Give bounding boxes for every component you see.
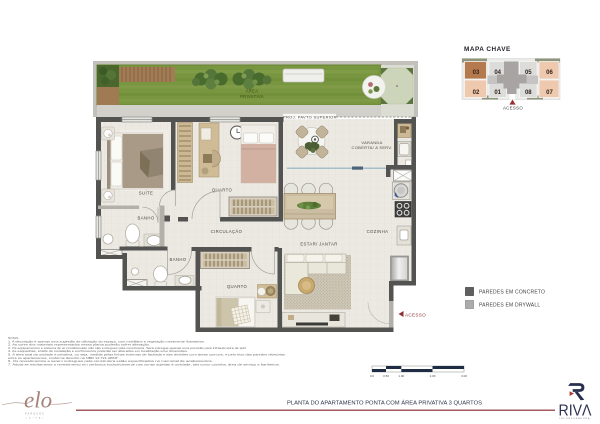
svg-text:04: 04 <box>494 70 501 76</box>
svg-text:ESTAR/ JANTAR: ESTAR/ JANTAR <box>300 242 337 247</box>
svg-text:QUARTO: QUARTO <box>227 284 248 289</box>
svg-text:08: 08 <box>525 90 532 96</box>
svg-text:07: 07 <box>546 90 553 96</box>
svg-text:CIRCULAÇÃO: CIRCULAÇÃO <box>211 229 243 234</box>
svg-text:MAPA CHAVE: MAPA CHAVE <box>464 46 511 53</box>
svg-text:elo: elo <box>24 388 52 413</box>
svg-text:1.00: 1.00 <box>398 374 404 378</box>
svg-text:( R I V A ): ( R I V A ) <box>26 417 44 420</box>
svg-text:PRIVATIVA: PRIVATIVA <box>240 94 264 99</box>
svg-text:BANHO: BANHO <box>169 257 186 262</box>
svg-text:7. Adota-se estritamente o rev: 7. Adota-se estritamente o revestimento … <box>8 362 280 366</box>
svg-text:PROJ. PAVTO SUPERIOR: PROJ. PAVTO SUPERIOR <box>283 114 337 119</box>
svg-text:3.00: 3.00 <box>461 374 467 378</box>
svg-text:PARQUES: PARQUES <box>25 413 45 416</box>
svg-text:SUÍTE: SUÍTE <box>139 191 153 196</box>
svg-text:BANHO: BANHO <box>137 216 154 221</box>
svg-text:02: 02 <box>473 90 480 96</box>
svg-text:0.0: 0.0 <box>370 374 375 378</box>
svg-text:PAREDES EM CONCRETO: PAREDES EM CONCRETO <box>479 290 545 296</box>
svg-text:ACESSO: ACESSO <box>405 313 426 318</box>
svg-text:01: 01 <box>494 90 501 96</box>
svg-text:0.50: 0.50 <box>383 374 389 378</box>
svg-text:ÁREA: ÁREA <box>246 89 259 94</box>
svg-text:PLANTA DO APARTAMENTO PONTA CO: PLANTA DO APARTAMENTO PONTA COM ÁREA PRI… <box>287 400 482 407</box>
svg-text:2.00: 2.00 <box>430 374 436 378</box>
svg-text:COBERTA/ A SERV.: COBERTA/ A SERV. <box>352 145 393 150</box>
svg-text:INCORPORADORA: INCORPORADORA <box>560 417 591 420</box>
svg-text:06: 06 <box>546 70 553 76</box>
svg-text:ACESSO: ACESSO <box>503 105 523 110</box>
svg-text:PAREDES EM DRYWALL: PAREDES EM DRYWALL <box>479 303 540 309</box>
svg-text:COZINHA: COZINHA <box>367 229 389 234</box>
svg-text:03: 03 <box>473 70 480 76</box>
svg-text:05: 05 <box>525 70 532 76</box>
